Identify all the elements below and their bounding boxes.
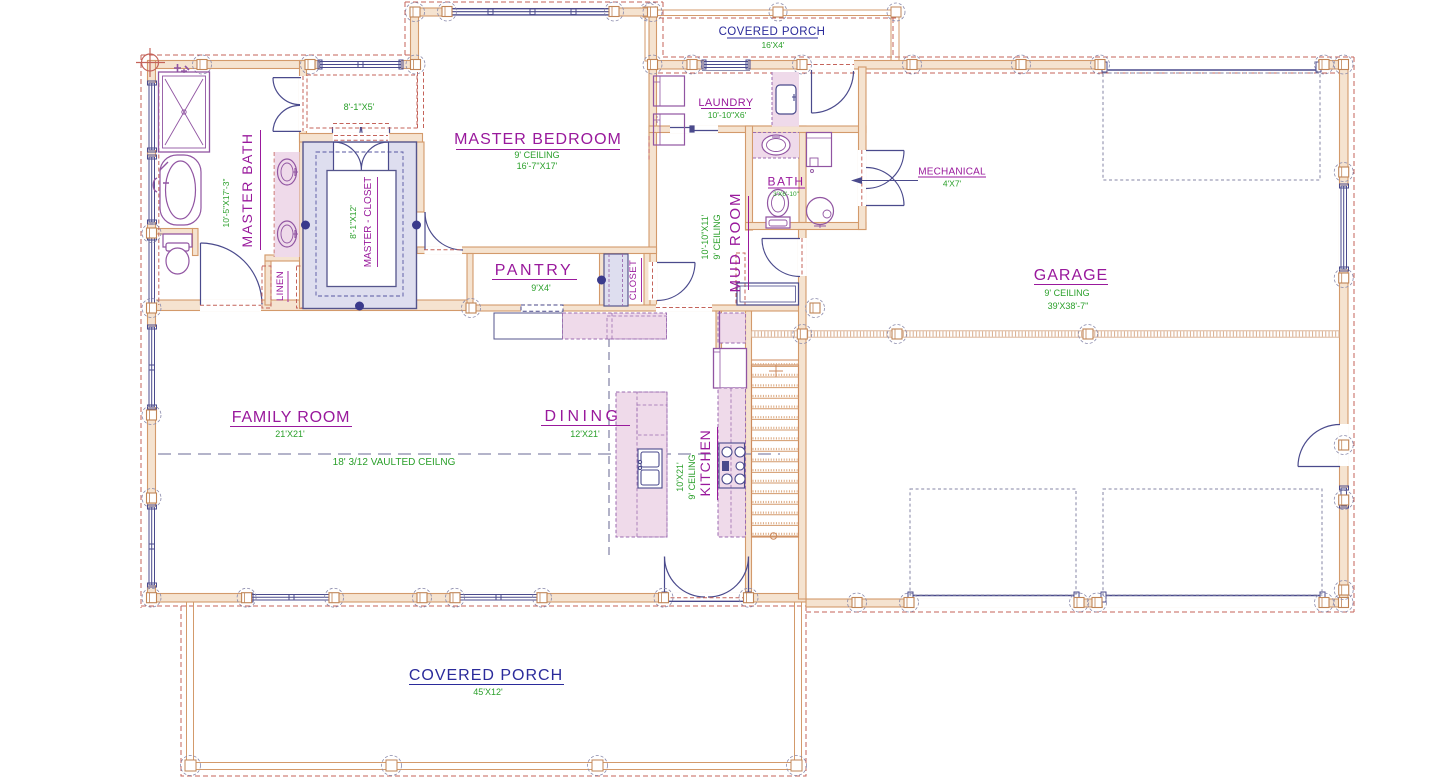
- svg-text:10'-10"X6': 10'-10"X6': [708, 110, 747, 120]
- svg-text:9'X4': 9'X4': [531, 283, 551, 293]
- svg-text:16'-7"X17': 16'-7"X17': [517, 161, 558, 171]
- svg-text:9' CEILING: 9' CEILING: [1044, 288, 1089, 298]
- svg-text:16'X4': 16'X4': [761, 40, 784, 50]
- svg-text:MASTER BEDROOM: MASTER BEDROOM: [454, 131, 622, 148]
- svg-text:MASTER - CLOSET: MASTER - CLOSET: [363, 177, 374, 268]
- svg-text:COVERED PORCH: COVERED PORCH: [719, 26, 826, 38]
- svg-text:39'X38'-7": 39'X38'-7": [1048, 301, 1089, 311]
- svg-text:MECHANICAL: MECHANICAL: [918, 167, 986, 178]
- svg-text:10'-10"X11': 10'-10"X11': [700, 214, 710, 259]
- svg-text:45'X12': 45'X12': [473, 687, 503, 697]
- svg-text:3'X6'-10": 3'X6'-10": [773, 191, 799, 198]
- svg-text:10'X21': 10'X21': [675, 462, 685, 492]
- svg-text:MUD ROOM: MUD ROOM: [727, 192, 744, 293]
- svg-text:18' 3/12 VAULTED CEILNG: 18' 3/12 VAULTED CEILNG: [333, 457, 456, 468]
- svg-text:LINEN: LINEN: [275, 271, 286, 301]
- svg-text:9' CEILING: 9' CEILING: [687, 454, 697, 499]
- svg-text:CLOSET: CLOSET: [628, 260, 639, 300]
- svg-text:BATH: BATH: [767, 175, 804, 189]
- svg-text:COVERED PORCH: COVERED PORCH: [409, 667, 563, 684]
- svg-text:21'X21': 21'X21': [275, 429, 305, 439]
- svg-text:FAMILY ROOM: FAMILY ROOM: [232, 409, 350, 426]
- svg-text:8'-1"X5': 8'-1"X5': [344, 102, 375, 112]
- svg-text:12'X21': 12'X21': [570, 429, 600, 439]
- svg-text:DINING: DINING: [545, 408, 622, 425]
- svg-text:9' CEILING: 9' CEILING: [514, 150, 559, 160]
- svg-text:4'X7': 4'X7': [943, 179, 962, 189]
- svg-text:10'-5"X17'-3": 10'-5"X17'-3": [221, 179, 231, 228]
- svg-text:PANTRY: PANTRY: [495, 262, 573, 279]
- svg-text:9' CEILING: 9' CEILING: [712, 214, 722, 259]
- svg-text:KITCHEN: KITCHEN: [697, 429, 713, 496]
- svg-text:MASTER BATH: MASTER BATH: [239, 132, 255, 247]
- svg-text:GARAGE: GARAGE: [1034, 267, 1108, 284]
- svg-text:8'-1"X12': 8'-1"X12': [348, 205, 358, 239]
- svg-text:LAUNDRY: LAUNDRY: [698, 97, 753, 109]
